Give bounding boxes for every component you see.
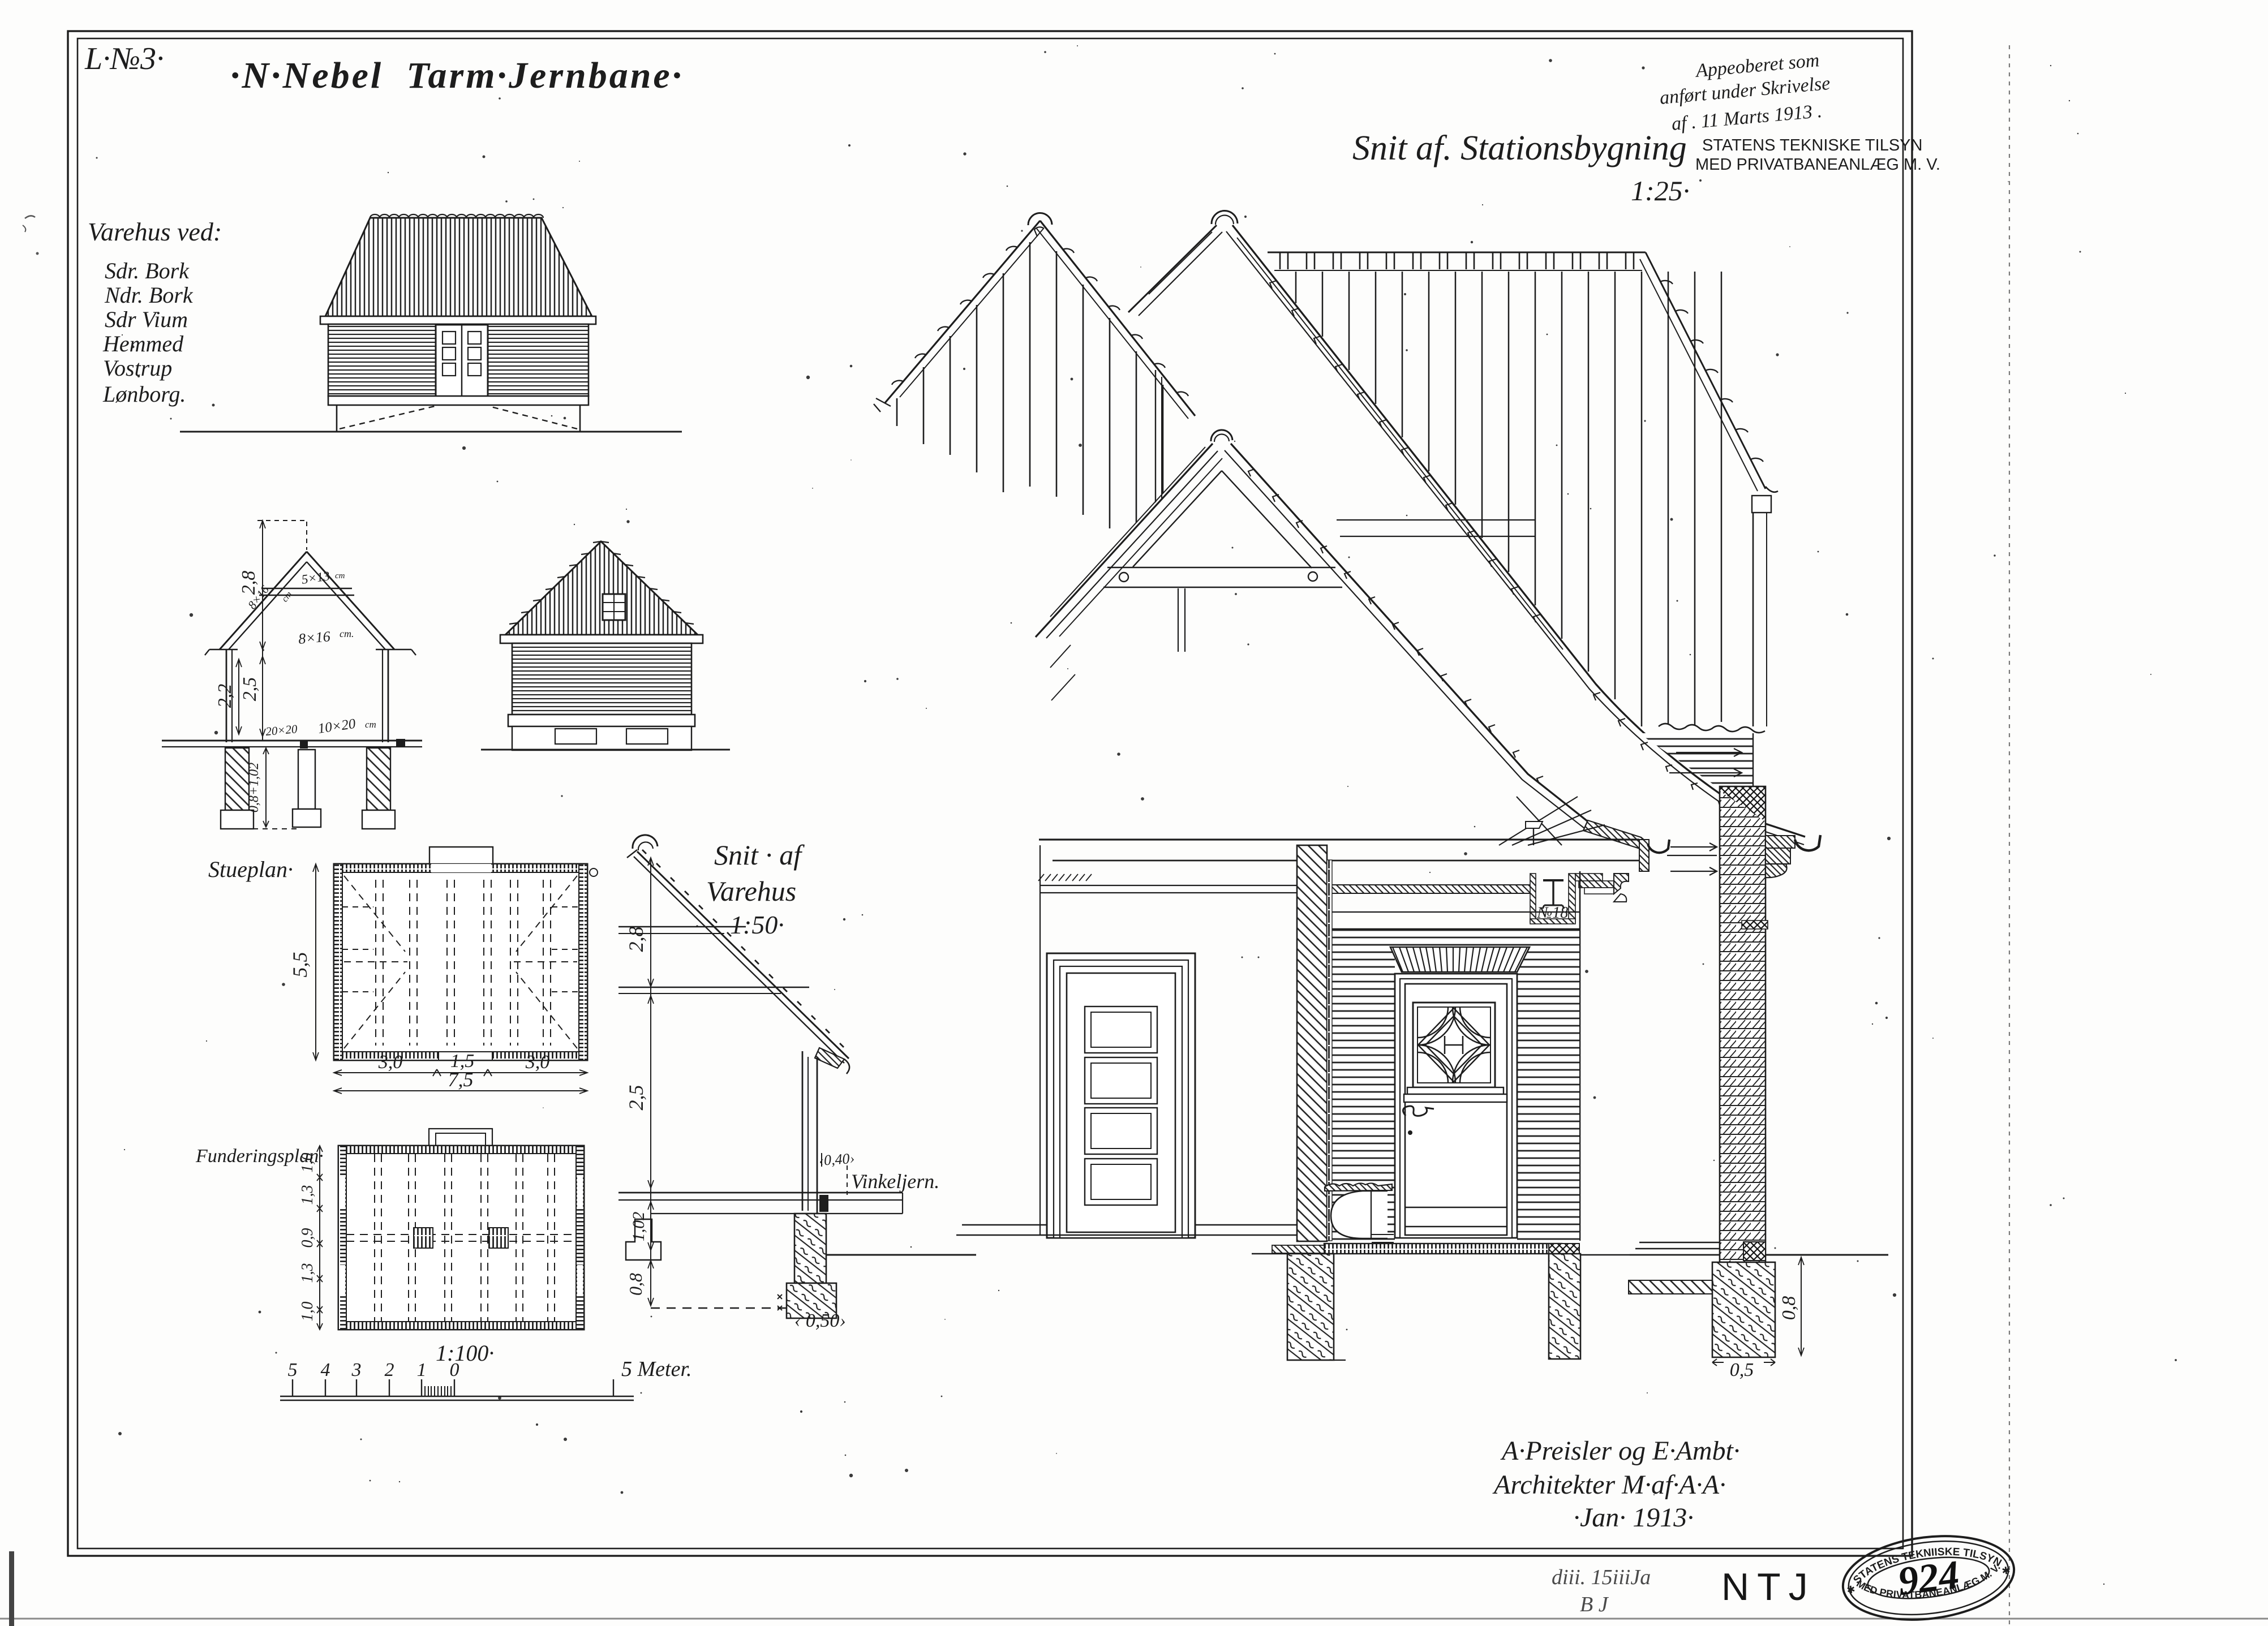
svg-text:1,02: 1,02 [629,1212,648,1242]
svg-text:Varehus: Varehus [706,875,796,907]
svg-text:cm.: cm. [340,628,354,639]
svg-text:8×16: 8×16 [298,628,331,647]
svg-text:B J: B J [1580,1593,1609,1616]
svg-text:✱: ✱ [2001,1564,2011,1577]
svg-text:0,8: 0,8 [625,1273,646,1296]
svg-text:0,9: 0,9 [299,1228,316,1248]
svg-text:Sdr. Bork: Sdr. Bork [105,258,190,283]
svg-text:924: 924 [1896,1552,1962,1605]
svg-text:cm: cm [335,571,345,580]
svg-text:✱: ✱ [1846,1584,1855,1596]
svg-text:2: 2 [385,1360,394,1380]
svg-text:Stueplan·: Stueplan· [208,857,293,882]
svg-text:1:25·: 1:25· [1631,175,1690,207]
svg-text:‹0,40›: ‹0,40› [818,1150,855,1169]
svg-text:20×20: 20×20 [265,722,298,738]
svg-text:Vostrup: Vostrup [103,355,172,381]
svg-text:Hemmed: Hemmed [102,331,184,356]
svg-text:3: 3 [351,1360,362,1380]
svg-text:1,3: 1,3 [299,1185,316,1205]
svg-text:1,0: 1,0 [299,1153,316,1173]
svg-text:0,5: 0,5 [1730,1360,1754,1380]
svg-text:4: 4 [321,1360,330,1380]
svg-text:Sdr Vium: Sdr Vium [105,307,188,332]
svg-text:2,2: 2,2 [214,684,235,708]
svg-text:Ndr. Bork: Ndr. Bork [104,282,194,308]
svg-text:‹ 0,50›: ‹ 0,50› [794,1310,846,1331]
svg-text:0,8: 0,8 [1779,1296,1799,1320]
svg-text:№18: №18 [1537,904,1568,922]
svg-text:Varehus ved:: Varehus ved: [88,217,222,246]
svg-text:0,8+1,02: 0,8+1,02 [247,763,261,812]
svg-text:MED PRIVATBANEANLÆG M. V.: MED PRIVATBANEANLÆG M. V. [1695,156,1940,174]
svg-text:1,3: 1,3 [299,1263,316,1283]
svg-text:Lønborg.: Lønborg. [102,381,186,407]
svg-text:1:50·: 1:50· [730,910,784,939]
svg-text:2,8: 2,8 [625,927,647,952]
svg-text:NTJ: NTJ [1721,1565,1816,1608]
svg-text:1: 1 [417,1360,427,1380]
svg-text:dііі. 15іііJa: dііі. 15іііJa [1552,1565,1651,1589]
svg-text:·Jan· 1913·: ·Jan· 1913· [1573,1503,1694,1533]
svg-text:Snit af. Stationsbygning: Snit af. Stationsbygning [1352,129,1687,167]
svg-text:7,5: 7,5 [448,1068,474,1091]
svg-text:·N·Nebel Tarm·Jernbane·: ·N·Nebel Tarm·Jernbane· [230,55,684,96]
svg-text:2,5: 2,5 [625,1085,647,1111]
svg-text:1:100·: 1:100· [436,1340,494,1366]
svg-text:Vinkeljern.: Vinkeljern. [851,1170,939,1193]
svg-text:2,5: 2,5 [239,677,260,702]
svg-text:3,0: 3,0 [525,1052,550,1073]
svg-text:STATENS TEKNISKE TILSYN: STATENS TEKNISKE TILSYN [1702,136,1922,154]
svg-text:5,5: 5,5 [289,952,311,978]
svg-text:A·Preisler og E·Ambt·: A·Preisler og E·Ambt· [1500,1436,1740,1466]
svg-text:Snit · af: Snit · af [714,839,805,871]
svg-text:L·№3·: L·№3· [84,41,164,76]
svg-text:3,0: 3,0 [378,1052,403,1073]
svg-text:Architekter M·af·A·A·: Architekter M·af·A·A· [1492,1470,1726,1500]
svg-text:0: 0 [450,1360,459,1380]
svg-text:5 Meter.: 5 Meter. [621,1357,692,1381]
svg-text:cm: cm [365,719,376,730]
svg-text:5: 5 [288,1360,298,1380]
svg-text:1,0: 1,0 [299,1302,316,1322]
